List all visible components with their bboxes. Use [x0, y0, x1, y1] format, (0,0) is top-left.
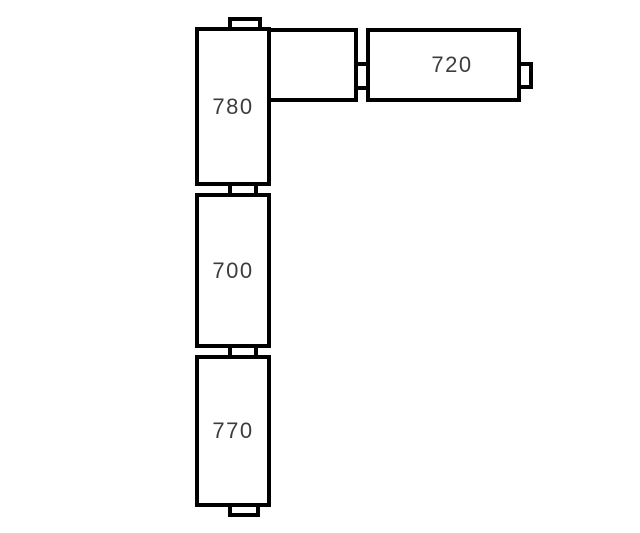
module-700-label: 700 [212, 260, 253, 282]
module-780-label: 780 [212, 96, 253, 118]
module-770-label: 770 [212, 420, 253, 442]
module-blank [267, 28, 358, 102]
diagram-canvas: 780 720 700 770 [0, 0, 640, 533]
module-700: 700 [195, 193, 271, 348]
module-780: 780 [195, 27, 271, 186]
module-770: 770 [195, 355, 271, 507]
module-720: 720 [366, 28, 521, 102]
module-720-label: 720 [414, 54, 472, 76]
